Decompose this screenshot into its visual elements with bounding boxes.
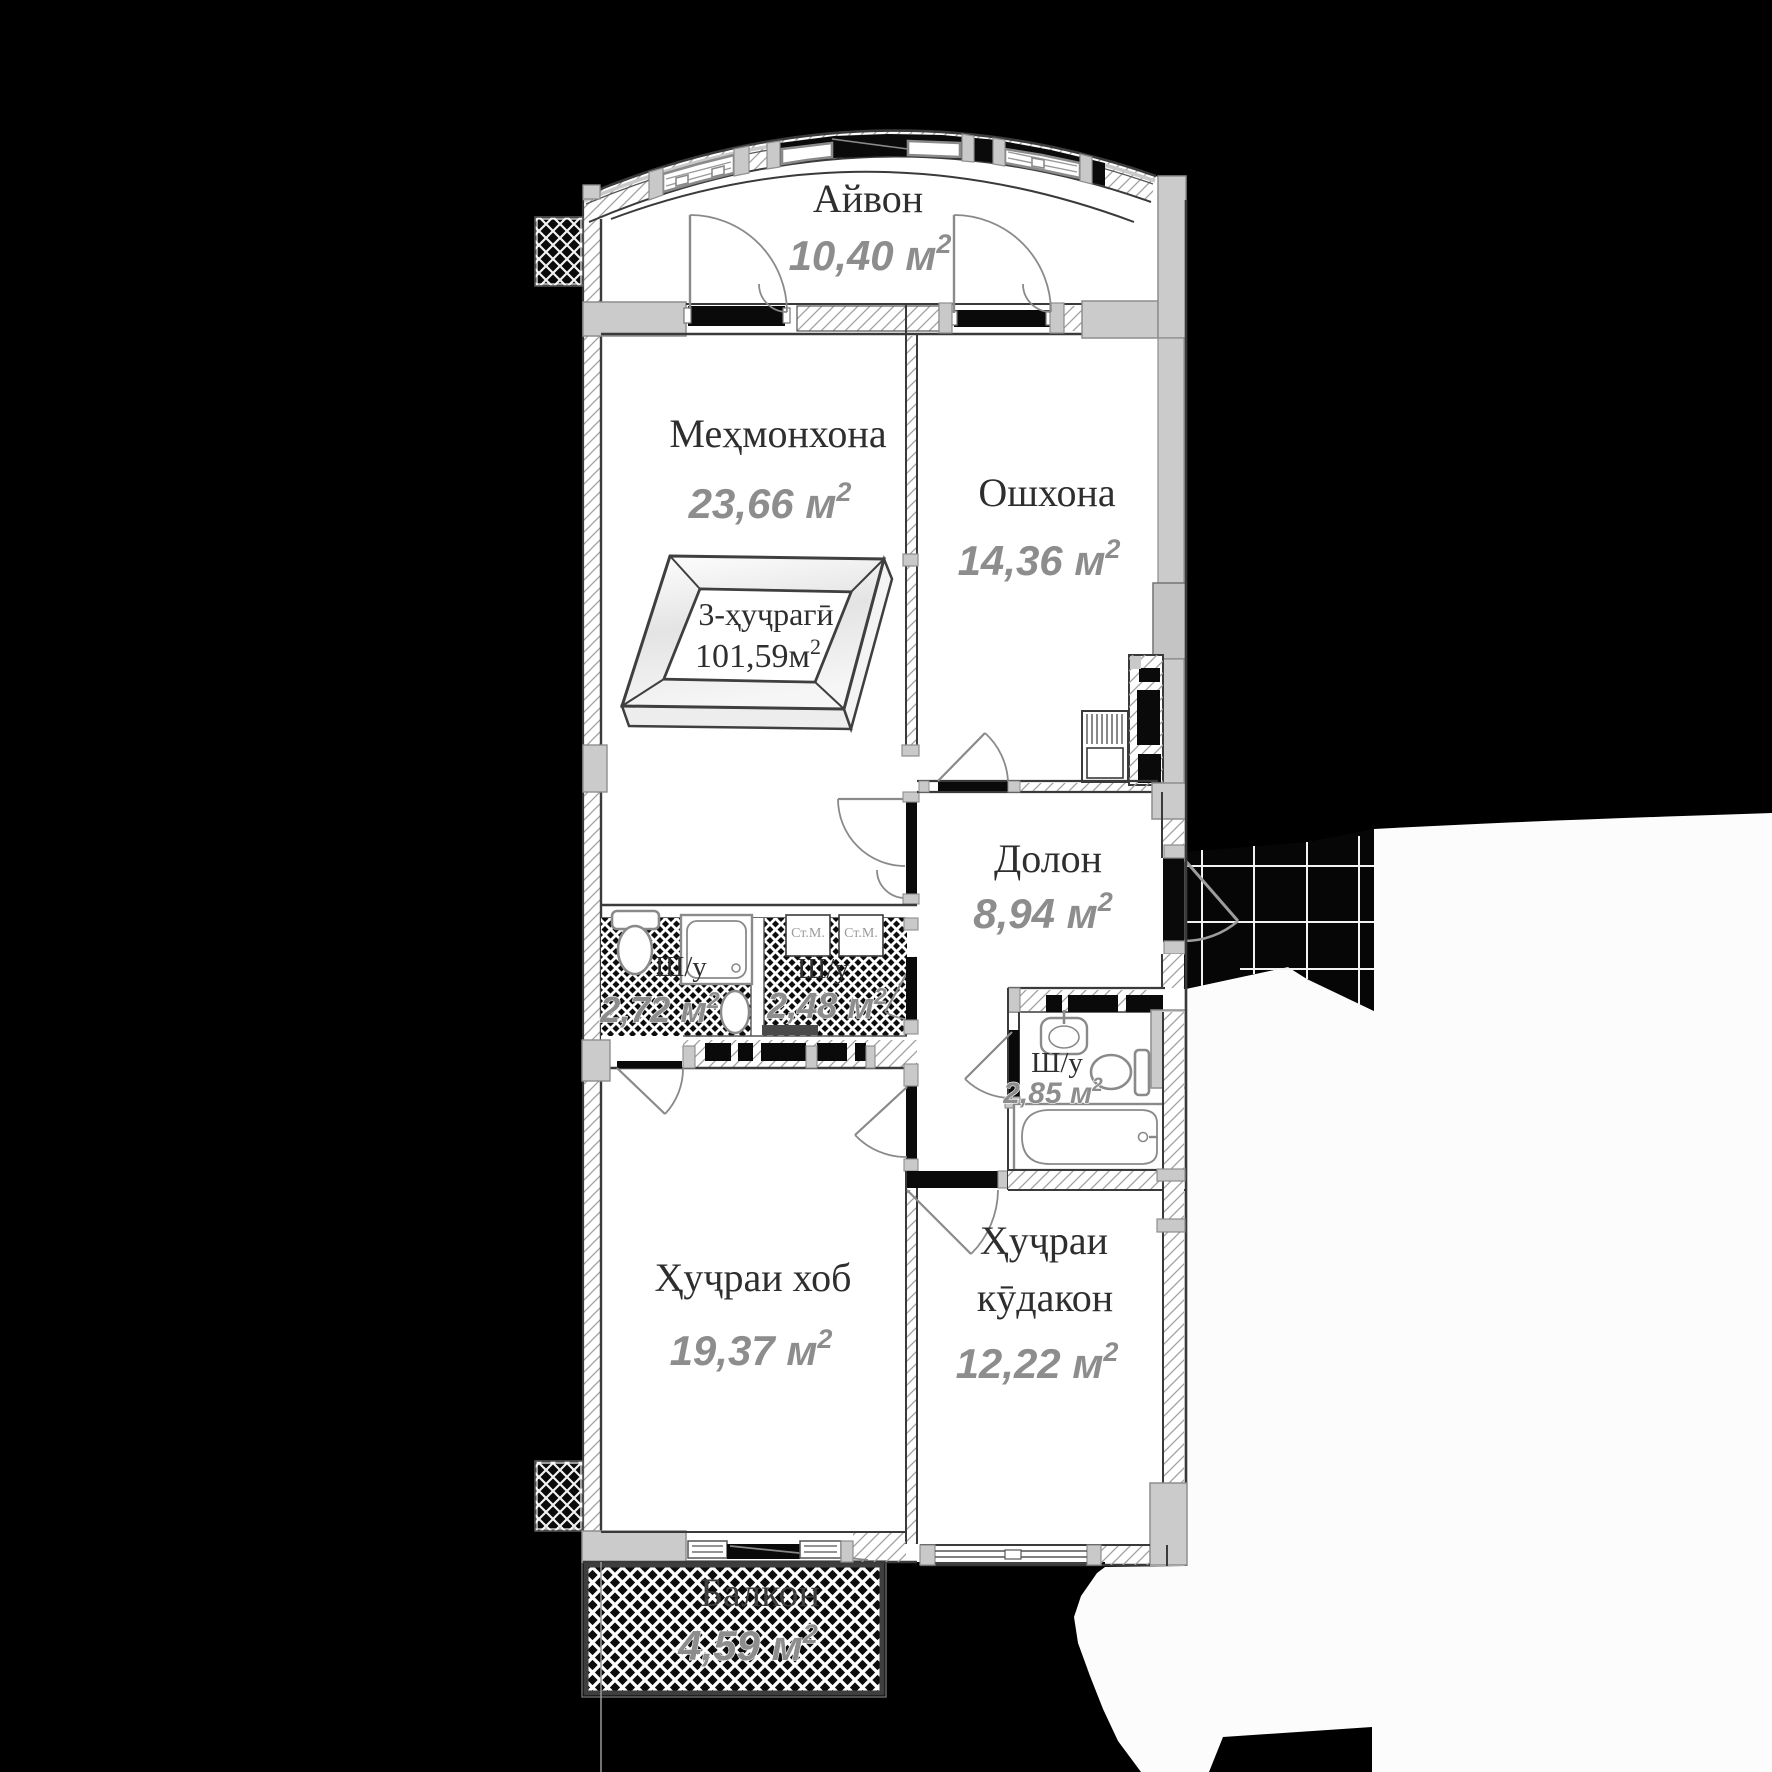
svg-text:2,72 м2: 2,72 м2 [599,987,720,1030]
svg-text:4,59 м2: 4,59 м2 [677,1619,818,1669]
svg-text:Ҳуҷраи: Ҳуҷраи [980,1218,1108,1263]
svg-text:Ст.М.: Ст.М. [791,926,825,941]
svg-text:19,37 м2: 19,37 м2 [670,1324,833,1374]
svg-text:кӯдакон: кӯдакон [977,1275,1113,1320]
svg-text:23,66 м2: 23,66 м2 [688,477,852,527]
svg-text:2,85 м2: 2,85 м2 [1002,1075,1103,1110]
svg-text:2,48 м2: 2,48 м2 [766,983,887,1026]
svg-text:12,22 м2: 12,22 м2 [956,1337,1119,1387]
svg-text:Айвон: Айвон [813,176,923,221]
svg-text:Ш/у: Ш/у [797,953,849,985]
svg-text:Меҳмонхона: Меҳмонхона [669,411,886,456]
svg-text:Ш/у: Ш/у [655,951,707,983]
svg-text:101,59м2: 101,59м2 [695,634,821,675]
svg-text:3-ҳуҷрагӣ: 3-ҳуҷрагӣ [698,596,833,632]
svg-text:Ошхона: Ошхона [978,470,1116,515]
svg-text:8,94 м2: 8,94 м2 [973,887,1113,937]
svg-text:Долон: Долон [994,836,1102,881]
svg-text:Ҳуҷраи хоб: Ҳуҷраи хоб [655,1255,852,1300]
svg-text:Балкон: Балкон [700,1570,820,1615]
svg-text:14,36 м2: 14,36 м2 [958,534,1121,584]
svg-text:10,40 м2: 10,40 м2 [789,229,952,279]
svg-text:Ст.М.: Ст.М. [844,926,878,941]
svg-text:Ш/у: Ш/у [1031,1047,1083,1079]
